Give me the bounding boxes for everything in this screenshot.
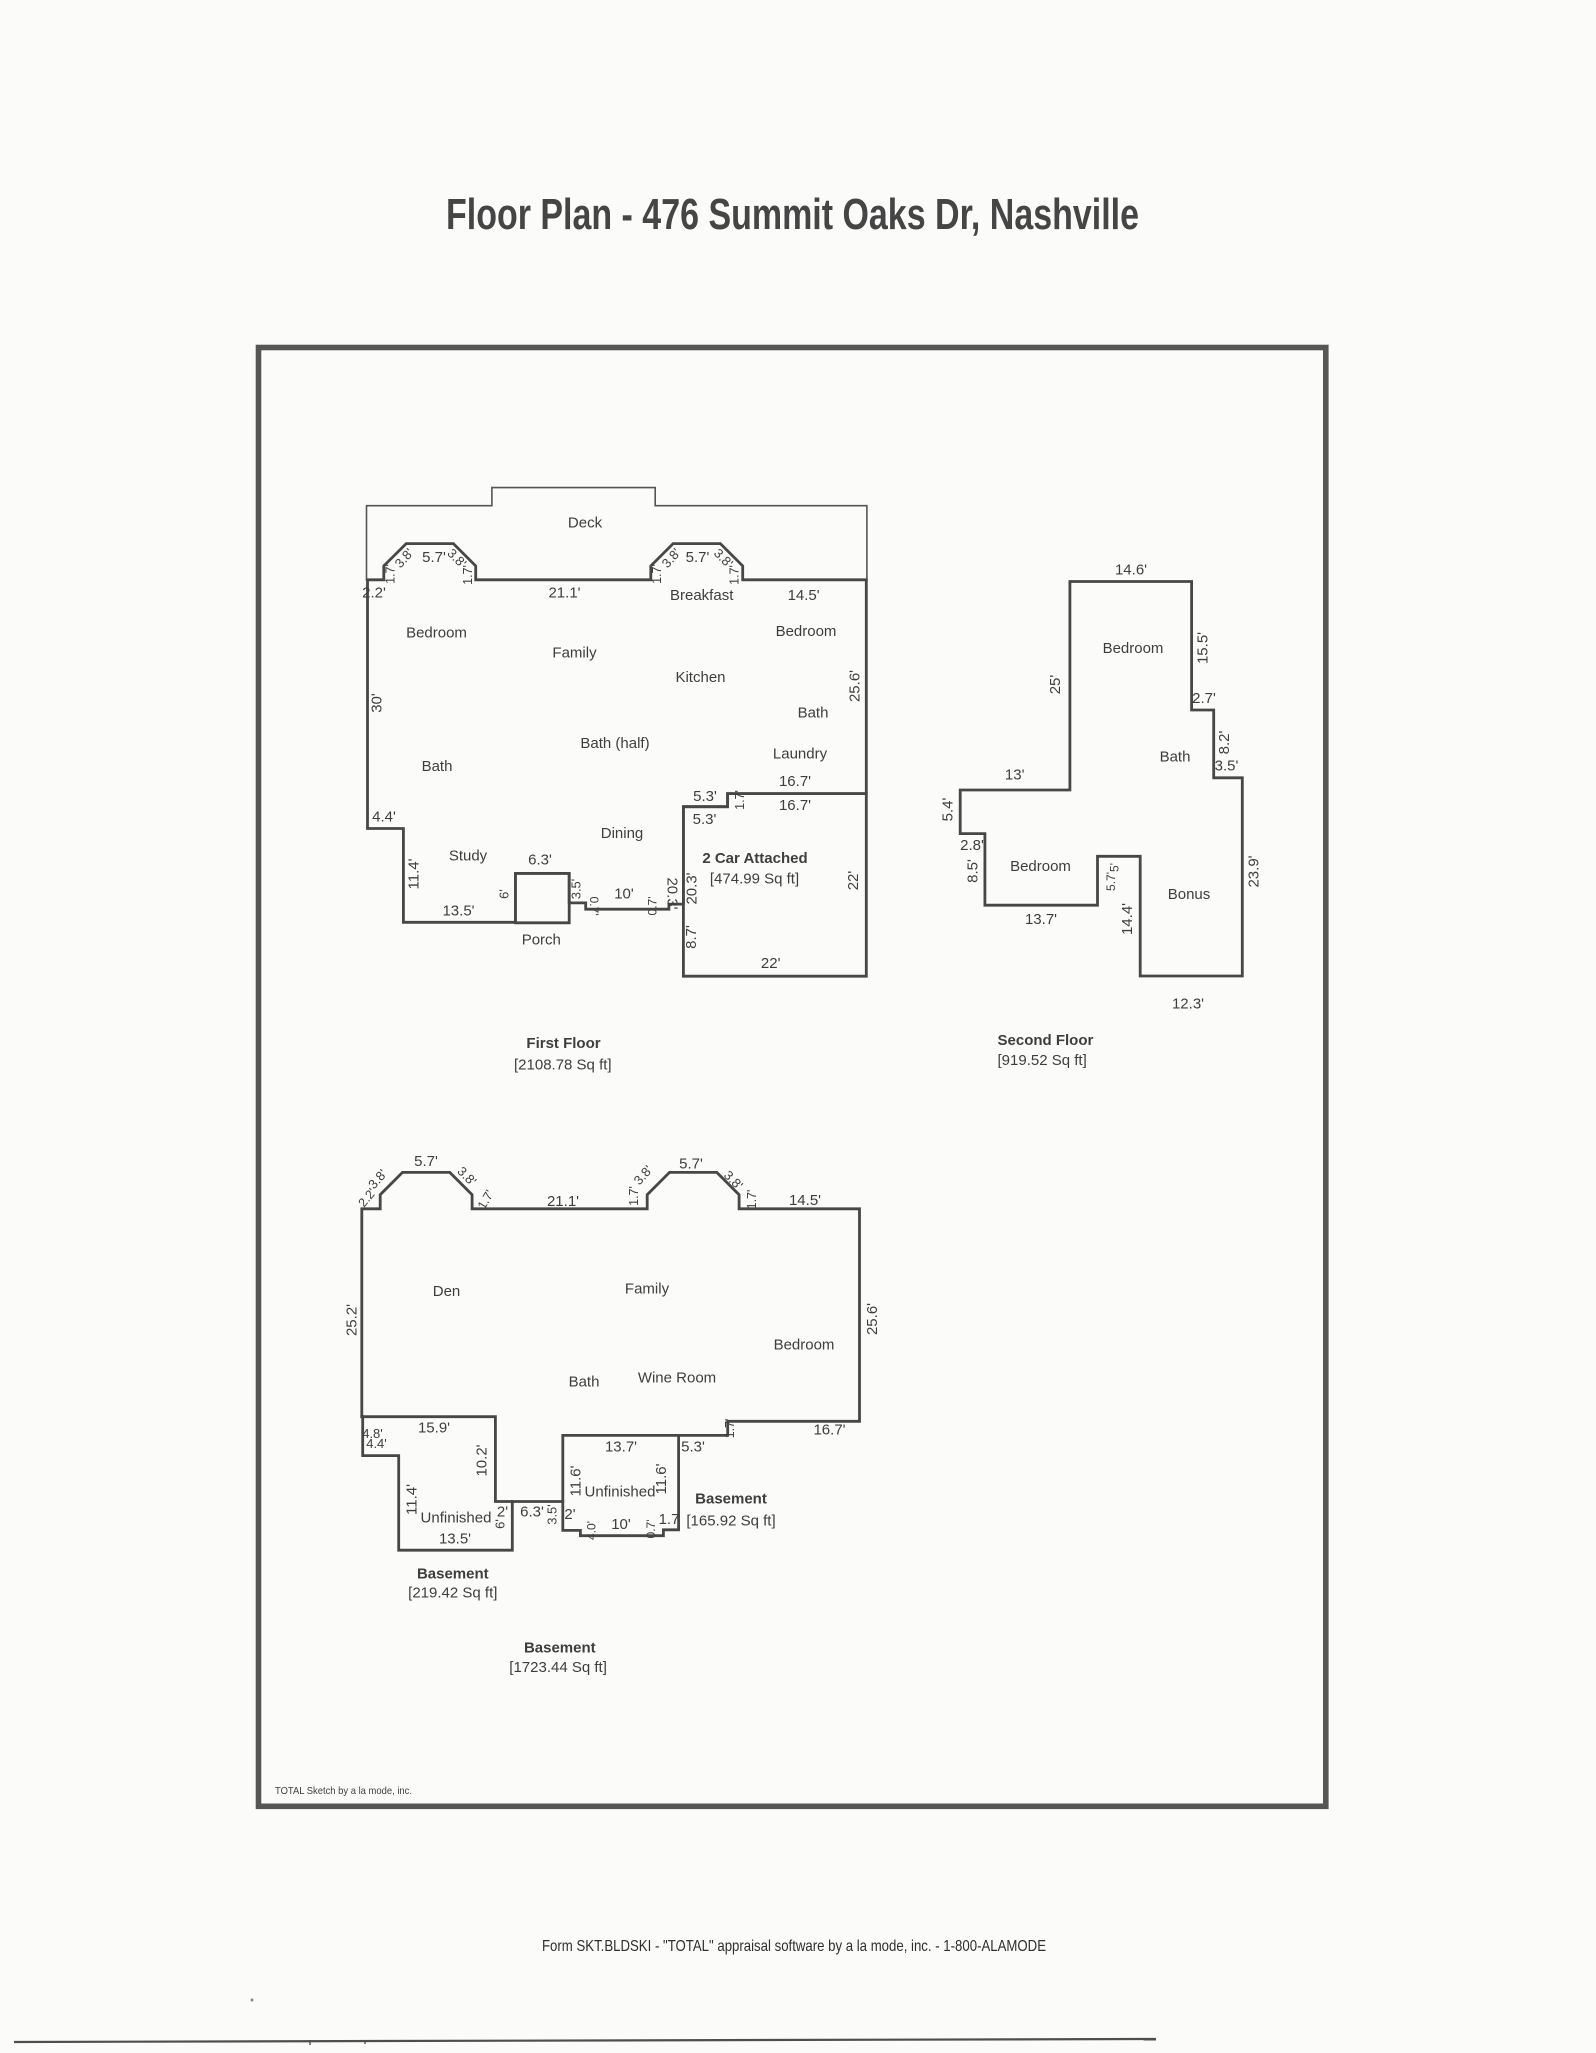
svg-text:8.7': 8.7' [683,925,700,949]
svg-text:Second Floor: Second Floor [998,1032,1094,1049]
svg-text:Unfinished: Unfinished [585,1484,656,1501]
svg-text:23.9': 23.9' [1246,855,1263,887]
svg-text:5.3': 5.3' [693,788,717,805]
svg-text:4.0': 4.0' [585,1521,599,1540]
svg-text:25.2': 25.2' [343,1304,360,1336]
svg-text:13': 13' [1005,767,1025,784]
svg-text:Laundry: Laundry [773,746,828,763]
svg-text:8.5': 8.5' [964,859,981,883]
svg-text:14.6': 14.6' [1115,562,1147,579]
svg-text:13.5': 13.5' [442,903,474,920]
svg-text:15.9': 15.9' [418,1420,450,1437]
svg-text:Bath: Bath [422,758,453,775]
svg-text:Wine Room: Wine Room [638,1370,716,1387]
svg-text:Bedroom: Bedroom [1103,640,1164,657]
svg-text:5.4': 5.4' [939,798,956,822]
svg-text:25.6': 25.6' [846,670,863,702]
svg-text:Family: Family [552,645,597,662]
svg-text:12.3': 12.3' [1172,996,1204,1013]
svg-text:20.3': 20.3' [663,877,680,909]
svg-text:Basement: Basement [524,1639,596,1656]
svg-text:3.5': 3.5' [545,1504,560,1525]
svg-text:4.4': 4.4' [366,1436,387,1451]
svg-text:8.2': 8.2' [1216,731,1233,755]
svg-text:11.4': 11.4' [405,858,422,889]
svg-text:10.2': 10.2' [473,1444,490,1476]
svg-text:Unfinished: Unfinished [421,1510,492,1527]
svg-text:Bath (half): Bath (half) [580,735,649,752]
svg-text:21.1': 21.1' [548,585,580,602]
svg-text:6.3': 6.3' [528,852,552,869]
svg-text:5.3': 5.3' [681,1439,705,1456]
svg-text:Breakfast: Breakfast [670,587,734,604]
svg-text:4.4': 4.4' [372,809,396,826]
svg-text:Bath: Bath [798,705,829,722]
svg-text:Family: Family [625,1281,670,1298]
svg-text:6': 6' [493,1519,508,1529]
svg-text:Bath: Bath [1160,749,1191,766]
svg-text:Basement: Basement [417,1565,489,1582]
svg-text:3.8': 3.8' [454,1163,479,1188]
svg-text:Bath: Bath [569,1374,600,1391]
svg-text:Bedroom: Bedroom [1010,858,1071,875]
svg-text:[919.52 Sq ft]: [919.52 Sq ft] [998,1052,1087,1069]
svg-text:2 Car Attached: 2 Car Attached [702,850,807,867]
svg-text:[219.42 Sq ft]: [219.42 Sq ft] [408,1585,497,1602]
svg-text:3.8': 3.8' [721,1167,746,1192]
svg-text:Dining: Dining [601,825,644,842]
svg-text:1.7: 1.7 [659,1511,680,1528]
svg-text:5.7': 5.7' [686,549,710,566]
svg-text:13.7': 13.7' [1025,911,1057,928]
svg-text:11.4': 11.4' [403,1484,420,1515]
svg-text:5': 5' [1108,863,1122,872]
svg-text:14.5': 14.5' [789,1192,821,1209]
svg-text:2.2': 2.2' [362,585,386,602]
svg-text:Deck: Deck [568,515,603,532]
svg-text:5.7': 5.7' [422,549,446,566]
svg-text:1.7': 1.7' [733,790,747,810]
svg-text:5.7': 5.7' [1104,872,1118,891]
svg-text:1.7': 1.7' [727,565,741,585]
svg-text:1.7': 1.7' [723,1419,737,1439]
svg-text:2.8': 2.8' [960,837,984,854]
svg-text:[2108.78 Sq ft]: [2108.78 Sq ft] [514,1056,612,1073]
svg-text:[165.92 Sq ft]: [165.92 Sq ft] [686,1513,775,1530]
svg-text:Bonus: Bonus [1168,886,1211,903]
svg-text:0.7': 0.7' [587,897,601,916]
svg-text:16.7': 16.7' [779,797,811,814]
svg-text:6': 6' [497,889,512,899]
svg-text:16.7': 16.7' [779,773,811,790]
svg-text:3.5': 3.5' [569,879,584,900]
svg-text:0.7': 0.7' [646,897,660,916]
svg-text:1.7': 1.7' [383,564,397,584]
svg-text:Form SKT.BLDSKI - "TOTAL" appr: Form SKT.BLDSKI - "TOTAL" appraisal soft… [542,1938,1046,1955]
svg-text:25': 25' [1047,675,1064,695]
svg-text:[1723.44 Sq ft]: [1723.44 Sq ft] [509,1659,607,1676]
svg-text:5.7': 5.7' [414,1153,438,1170]
svg-text:16.7': 16.7' [813,1422,845,1439]
svg-text:1.7': 1.7' [745,1190,759,1210]
svg-text:2.7': 2.7' [1192,690,1216,707]
svg-text:3.8': 3.8' [631,1162,656,1187]
svg-text:21.1': 21.1' [547,1193,579,1210]
svg-text:22': 22' [845,871,862,891]
svg-text:Bedroom: Bedroom [774,1337,835,1354]
svg-text:5.3': 5.3' [693,811,717,828]
svg-text:1.7': 1.7' [650,564,664,584]
svg-text:Basement: Basement [695,1491,767,1508]
svg-text:1.7': 1.7' [461,565,475,585]
svg-text:Study: Study [449,848,488,865]
svg-text:14.4': 14.4' [1119,903,1136,935]
svg-text:0.7': 0.7' [644,1520,658,1539]
svg-text:6.3': 6.3' [520,1504,544,1521]
svg-text:5.7': 5.7' [679,1156,703,1173]
svg-text:2': 2' [497,1504,508,1521]
svg-text:Porch: Porch [522,932,561,949]
svg-text:TOTAL Sketch by a la mode, inc: TOTAL Sketch by a la mode, inc. [275,1785,412,1797]
svg-text:Floor Plan - 476 Summit Oaks D: Floor Plan - 476 Summit Oaks Dr, Nashvil… [446,190,1139,239]
svg-text:Bedroom: Bedroom [406,625,467,642]
svg-text:13.7': 13.7' [605,1439,637,1456]
svg-text:3.5': 3.5' [1215,758,1239,775]
svg-text:First Floor: First Floor [526,1035,600,1052]
svg-text:20.3': 20.3' [683,872,700,904]
svg-text:Den: Den [433,1283,461,1300]
svg-text:2': 2' [564,1506,575,1523]
svg-text:10': 10' [611,1516,631,1533]
svg-text:Kitchen: Kitchen [675,669,725,686]
svg-text:Bedroom: Bedroom [776,623,837,640]
svg-text:11.6': 11.6' [567,1465,584,1496]
svg-text:30': 30' [368,693,385,713]
svg-text:25.6': 25.6' [864,1303,881,1335]
svg-text:14.5': 14.5' [788,587,820,604]
svg-text:[474.99 Sq ft]: [474.99 Sq ft] [710,871,799,888]
svg-text:1.7': 1.7' [627,1186,641,1206]
svg-text:13.5': 13.5' [439,1531,471,1548]
svg-text:22': 22' [761,955,781,972]
svg-text:15.5': 15.5' [1194,632,1211,664]
svg-text:10': 10' [614,886,634,903]
